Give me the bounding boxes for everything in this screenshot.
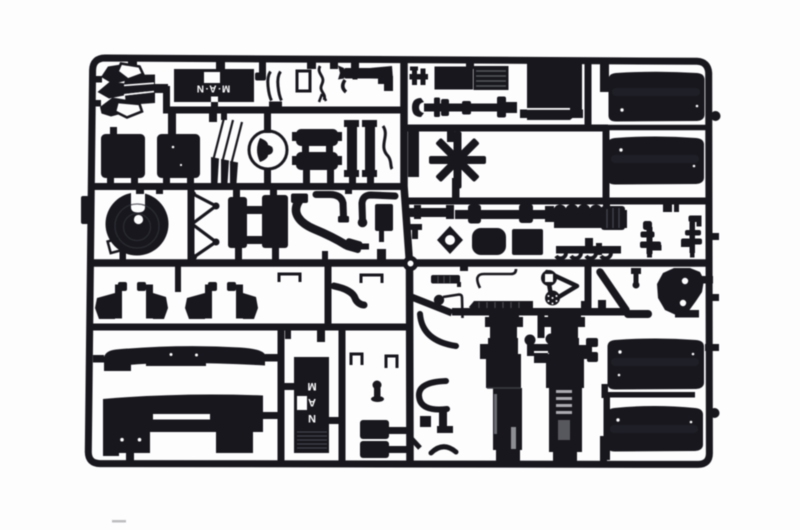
svg-text:M: M bbox=[307, 380, 316, 392]
svg-text:M·A·N: M·A·N bbox=[196, 83, 230, 94]
svg-text:A: A bbox=[308, 396, 316, 408]
svg-text:N: N bbox=[308, 412, 316, 424]
